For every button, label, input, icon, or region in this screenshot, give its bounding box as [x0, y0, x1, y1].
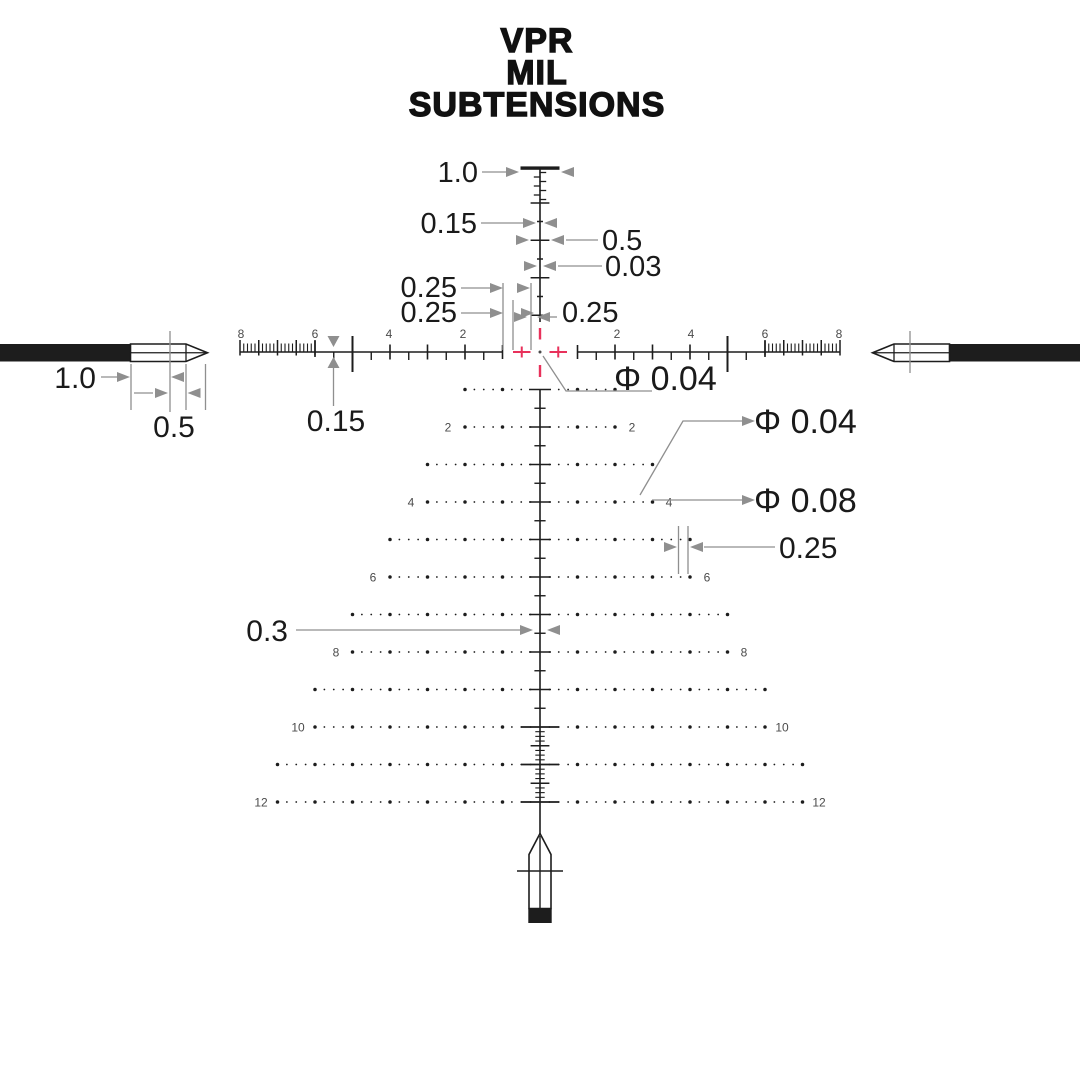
label-lower-half-tick: 0.3	[246, 615, 288, 648]
svg-text:6: 6	[762, 327, 769, 341]
lower-scale	[521, 390, 559, 909]
label-large-dot-diameter: Φ 0.08	[754, 482, 857, 520]
svg-text:4: 4	[688, 327, 695, 341]
svg-text:4: 4	[386, 327, 393, 341]
svg-text:4: 4	[408, 495, 415, 509]
label-quarter-right: 0.25	[562, 297, 618, 329]
svg-text:12: 12	[254, 795, 268, 809]
upper-post	[521, 166, 560, 322]
title-line-3: SUBTENSIONS	[409, 86, 666, 124]
label-post-tip-length: 1.0	[54, 362, 96, 395]
label-center-dot-diameter: Φ 0.04	[614, 360, 717, 398]
title: VPR MIL SUBTENSIONS	[409, 22, 666, 124]
reticle-diagram: VPR MIL SUBTENSIONS 86422468 22446688101…	[0, 0, 1080, 1080]
label-upper-minor-tick: 0.15	[421, 208, 477, 240]
label-quarter-left-2: 0.25	[401, 297, 457, 329]
svg-text:6: 6	[370, 570, 377, 584]
label-top-bar-width: 1.0	[438, 157, 478, 189]
svg-text:6: 6	[312, 327, 319, 341]
svg-text:4: 4	[666, 495, 673, 509]
reticle-subtension-page: VPR MIL SUBTENSIONS 86422468 22446688101…	[0, 0, 1080, 1080]
label-line-thickness: 0.15	[307, 405, 365, 438]
svg-text:8: 8	[238, 327, 245, 341]
svg-text:2: 2	[460, 327, 467, 341]
svg-text:8: 8	[836, 327, 843, 341]
label-small-dot-diameter: Φ 0.04	[754, 403, 857, 441]
annotation-labels: 1.0 0.15 0.5 0.03 0.25 0.25 0.25 Φ 0.04 …	[54, 157, 856, 648]
svg-text:8: 8	[333, 645, 340, 659]
label-post-tip-half: 0.5	[153, 411, 195, 444]
svg-text:2: 2	[614, 327, 621, 341]
svg-text:10: 10	[775, 720, 789, 734]
label-post-line-width: 0.03	[605, 251, 661, 283]
svg-text:2: 2	[629, 420, 636, 434]
svg-text:8: 8	[741, 645, 748, 659]
svg-text:12: 12	[812, 795, 826, 809]
center-cross	[513, 328, 567, 377]
label-dot-spacing: 0.25	[779, 532, 837, 565]
svg-text:6: 6	[704, 570, 711, 584]
svg-text:2: 2	[445, 420, 452, 434]
svg-text:10: 10	[291, 720, 305, 734]
